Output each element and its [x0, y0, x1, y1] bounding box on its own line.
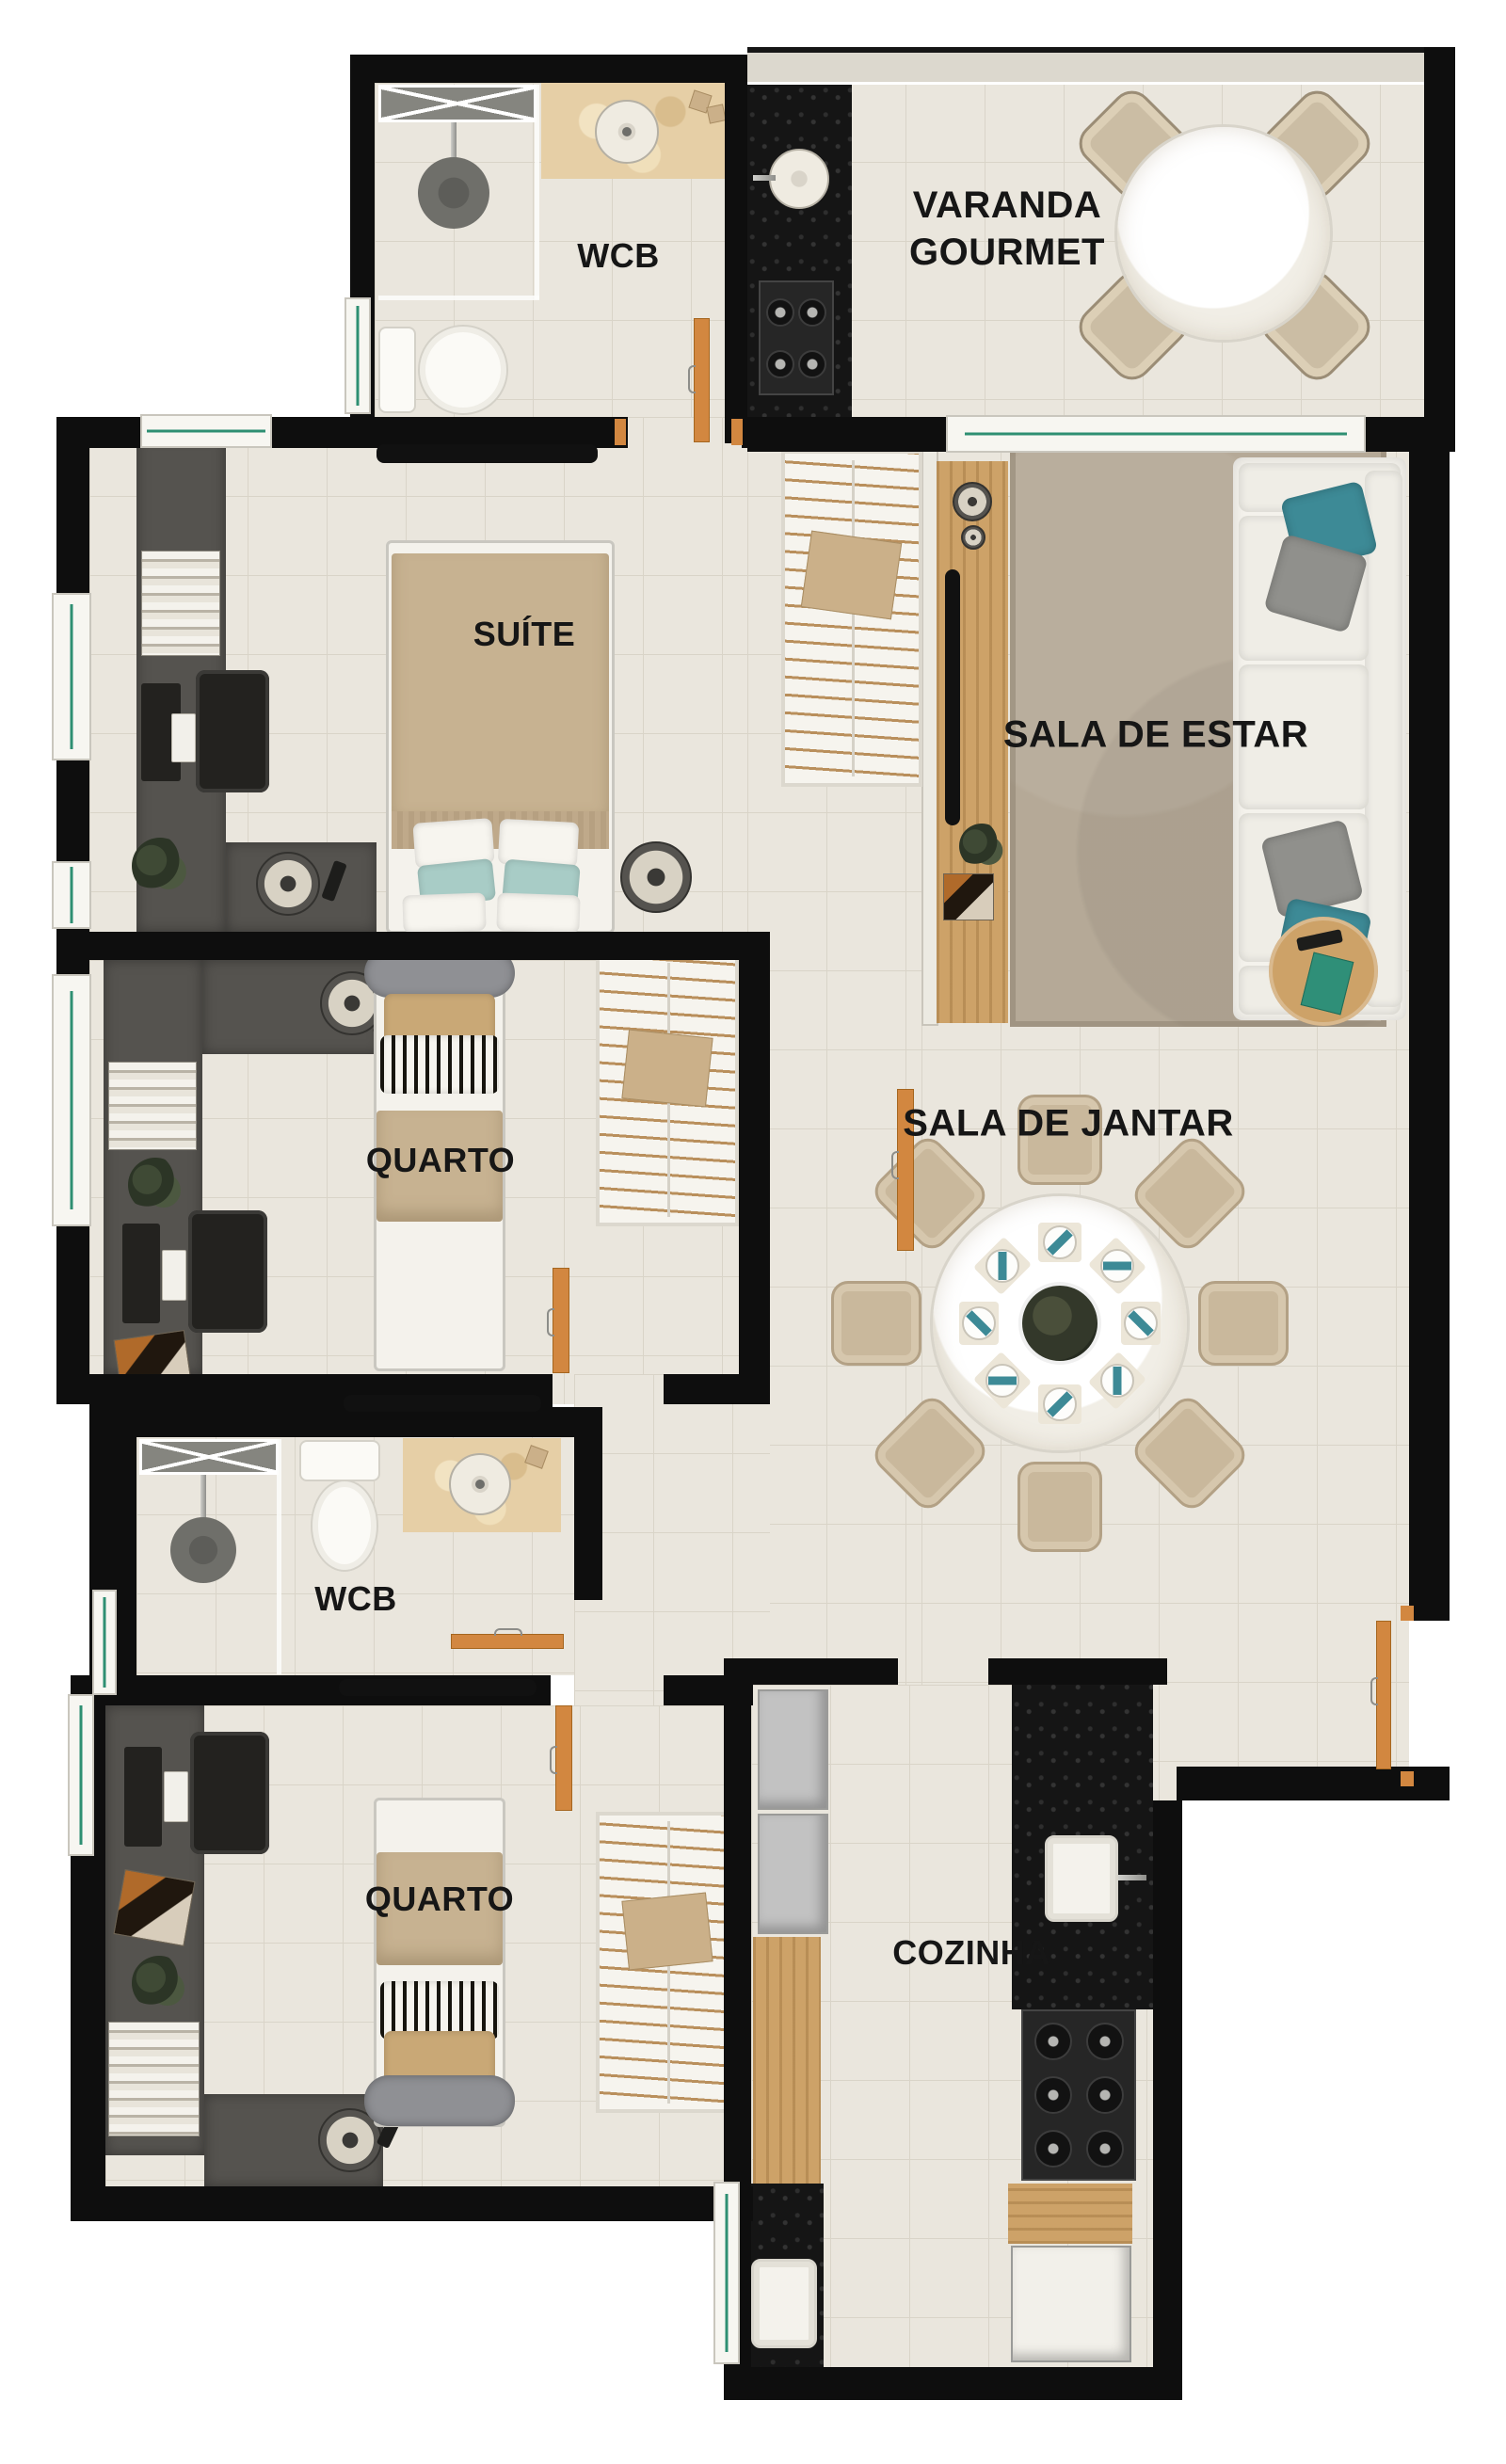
quarto2-desk-chair: [190, 1732, 269, 1854]
wall: [739, 932, 770, 1404]
wall: [71, 2186, 753, 2221]
label-varanda-line2: GOURMET: [909, 229, 1105, 276]
dining-chair: [831, 1281, 921, 1366]
wcb-social-shower-glass-v: [277, 1439, 281, 1674]
wcb-suite-shower-head: [418, 157, 489, 229]
suite-pillow: [402, 892, 486, 933]
wcb-suite-door: [694, 318, 710, 442]
quarto1-window: [52, 974, 91, 1226]
quarto2-plant: [132, 1956, 186, 2010]
place-setting: [1121, 1302, 1161, 1345]
varanda-table: [1117, 127, 1330, 340]
kitchen-washer: [1011, 2246, 1131, 2362]
dining-centerpiece-flowers: [1022, 1286, 1097, 1361]
wall: [725, 55, 747, 443]
suite-pillow: [496, 892, 580, 933]
quarto1-keyboard: [162, 1250, 186, 1301]
wall: [56, 932, 770, 960]
place-setting: [1038, 1223, 1081, 1262]
wcb-suite-shower-box: [378, 85, 537, 122]
label-varanda-line1: VARANDA: [909, 182, 1105, 229]
quarto1-book-stack: [108, 1062, 197, 1150]
quarto1-tv: [344, 1395, 541, 1412]
varanda-sink: [769, 149, 829, 209]
quarto2-window: [68, 1694, 94, 1856]
kitchen-stove: [1021, 2009, 1136, 2181]
wcb-suite-shower-glass-v: [535, 85, 539, 299]
burner: [1034, 2076, 1072, 2114]
suite-window-1: [52, 593, 91, 760]
door-frame: [1401, 1771, 1414, 1786]
varanda-cooktop: [759, 280, 834, 395]
door-frame: [615, 419, 626, 445]
wcb-suite-faucet: [622, 127, 632, 136]
burner: [1086, 2023, 1124, 2060]
label-suite: SUÍTE: [473, 615, 576, 654]
wall: [664, 1374, 770, 1404]
quarto1-pillow-striped: [380, 1035, 499, 1094]
balcony-sliding-door: [946, 415, 1366, 453]
place-setting: [1038, 1384, 1081, 1424]
label-wcb-social: WCB: [314, 1579, 396, 1619]
quarto1-desk-chair: [188, 1210, 267, 1333]
kitchen-wood-counter-bottom: [1008, 2184, 1132, 2244]
suite-desk-chair: [196, 670, 269, 792]
laundry-sink: [751, 2259, 817, 2348]
wcb-social-door: [451, 1634, 564, 1649]
suite-plant: [132, 838, 188, 894]
wcb-social-toilet-tank: [299, 1440, 380, 1481]
living-speaker-small: [961, 525, 985, 550]
quarto2-closet-clothes-stack: [621, 1892, 713, 1970]
quarto1-door: [553, 1268, 569, 1373]
burner: [1086, 2130, 1124, 2168]
quarto2-monitor: [124, 1747, 162, 1847]
suite-closet: [781, 450, 922, 787]
burner: [798, 350, 826, 378]
burner: [1086, 2076, 1124, 2114]
quarto2-keyboard: [164, 1771, 188, 1822]
wall: [574, 1407, 602, 1600]
door-frame: [1401, 1606, 1414, 1621]
label-cozinha: COZINHA: [892, 1933, 1050, 1973]
label-varanda-gourmet: VARANDA GOURMET: [909, 182, 1105, 276]
burner: [766, 298, 794, 327]
quarto2-magazine: [113, 1869, 195, 1946]
quarto2-door: [555, 1705, 572, 1811]
burner: [1034, 2023, 1072, 2060]
living-magazines: [943, 873, 994, 920]
label-sala-de-jantar: SALA DE JANTAR: [903, 1103, 1233, 1145]
quarto2-tv: [339, 1679, 537, 1696]
burner: [766, 350, 794, 378]
quarto2-book-stack: [108, 2022, 200, 2136]
place-setting: [959, 1302, 999, 1345]
living-tv: [945, 569, 960, 825]
wall: [1409, 417, 1450, 1621]
living-speaker-large: [953, 482, 992, 521]
quarto1-closet-clothes-stack: [621, 1029, 713, 1107]
burner: [798, 298, 826, 327]
wcb-suite-window: [344, 297, 371, 414]
entry-door: [1376, 1621, 1391, 1769]
kitchen-appliance-top: [758, 1689, 828, 1810]
varanda-faucet: [753, 175, 776, 181]
burner: [1034, 2130, 1072, 2168]
wall: [1153, 1800, 1182, 2400]
service-window: [713, 2182, 740, 2364]
label-quarto-2: QUARTO: [365, 1880, 514, 1919]
wcb-social-shower-head: [170, 1517, 236, 1583]
floor-plan: VARANDA GOURMET WCB SUÍTE SALA DE ESTAR …: [0, 0, 1506, 2464]
suite-top-window: [140, 414, 272, 448]
wall: [747, 417, 946, 452]
kitchen-appliance-bottom: [758, 1814, 828, 1934]
quarto2-headboard: [364, 2075, 515, 2126]
dining-chair: [1198, 1281, 1289, 1366]
dining-chair: [1017, 1462, 1102, 1552]
kitchen-wood-counter-left: [753, 1937, 821, 2184]
quarto1-plant: [128, 1158, 183, 1212]
wcb-suite-toilet-bowl: [418, 325, 508, 415]
wcb-social-shower-box: [139, 1439, 279, 1475]
wcb-suite-shower-glass-h: [378, 296, 539, 300]
suite-book-stack: [141, 551, 220, 656]
wcb-suite-accessory: [706, 104, 726, 123]
wcb-social-window: [92, 1590, 117, 1695]
wcb-social-faucet: [475, 1480, 485, 1489]
label-quarto-1: QUARTO: [366, 1141, 515, 1180]
wall: [350, 55, 747, 83]
living-plant: [959, 824, 1004, 869]
kitchen-faucet: [1118, 1875, 1146, 1880]
wcb-social-toilet-bowl: [311, 1480, 378, 1572]
wall: [988, 1658, 1167, 1685]
floor-corridor: [574, 1374, 770, 1705]
varanda-parapet: [747, 47, 1455, 85]
suite-keyboard: [171, 713, 196, 762]
kitchen-sink: [1045, 1835, 1118, 1922]
wall: [724, 2367, 1177, 2400]
wall: [1424, 47, 1455, 428]
door-frame: [731, 419, 743, 445]
suite-speaker-right: [620, 841, 692, 913]
suite-speaker-left: [256, 852, 320, 916]
quarto1-monitor: [122, 1224, 160, 1323]
label-sala-de-estar: SALA DE ESTAR: [1003, 714, 1308, 757]
suite-closet-clothes-stack: [801, 531, 902, 620]
wall: [736, 1658, 898, 1685]
label-wcb-suite: WCB: [577, 236, 659, 276]
wcb-suite-toilet-tank: [378, 327, 416, 413]
suite-tv: [376, 444, 598, 463]
suite-window-2: [52, 861, 91, 929]
suite-bed-duvet: [392, 553, 609, 828]
